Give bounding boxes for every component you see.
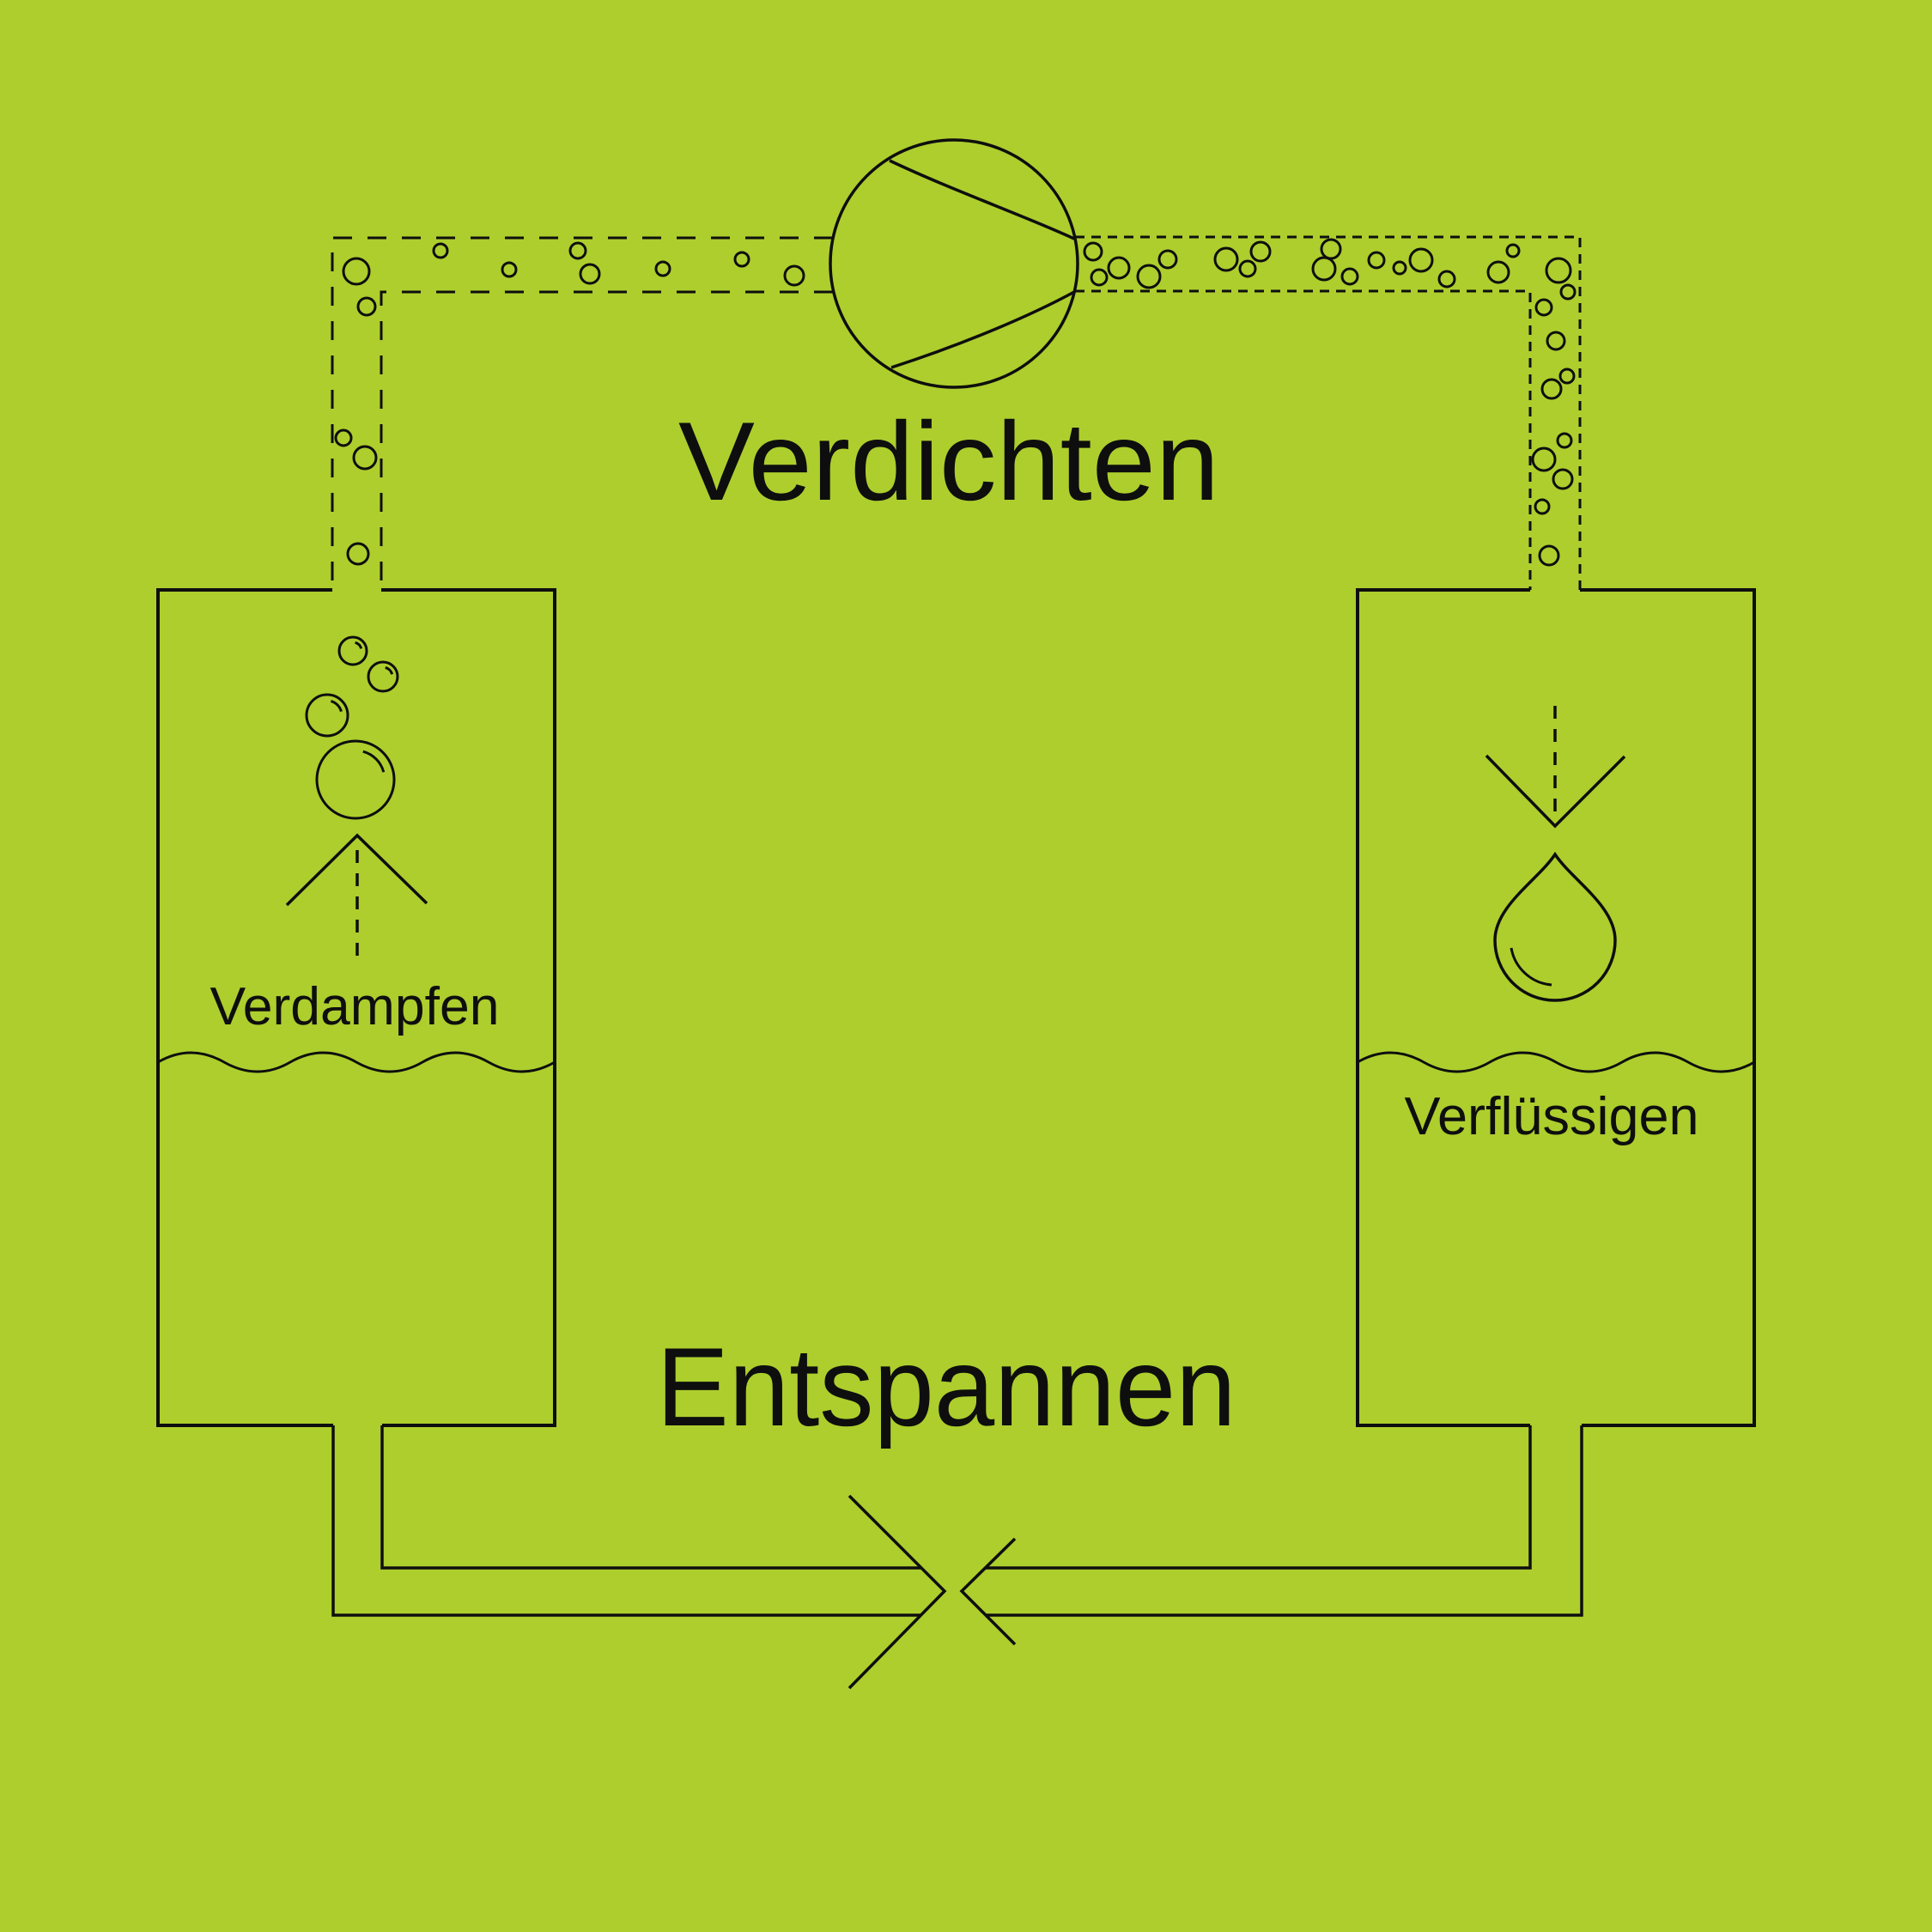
title-verdichten: Verdichten xyxy=(678,398,1219,524)
background xyxy=(0,0,1932,1932)
heat-pump-cycle-diagram: Verdampfen Verflüssigen xyxy=(0,0,1932,1932)
condenser-label: Verflüssigen xyxy=(1405,1087,1699,1146)
evaporator-label: Verdampfen xyxy=(210,977,500,1036)
title-entspannen: Entspannen xyxy=(657,1324,1236,1449)
